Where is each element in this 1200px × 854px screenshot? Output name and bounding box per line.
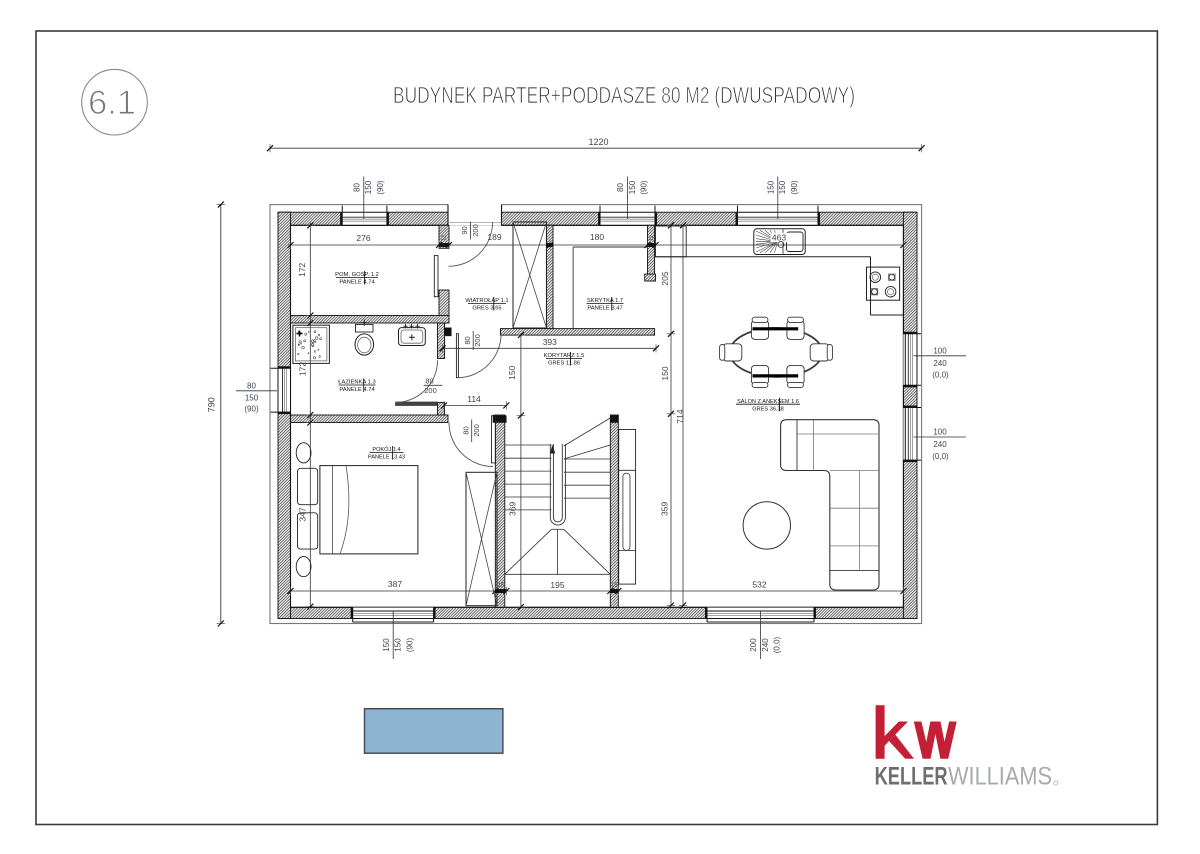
svg-text:(90): (90) xyxy=(376,180,385,195)
svg-text:393: 393 xyxy=(543,337,557,347)
svg-text:150: 150 xyxy=(507,365,517,379)
svg-text:347: 347 xyxy=(298,507,308,521)
svg-text:200: 200 xyxy=(473,334,482,347)
svg-text:80: 80 xyxy=(247,382,256,391)
svg-text:PANELE 4.74: PANELE 4.74 xyxy=(339,387,375,393)
svg-text:200: 200 xyxy=(424,386,437,395)
svg-text:(0,0): (0,0) xyxy=(932,452,949,461)
svg-text:90: 90 xyxy=(460,226,469,234)
svg-text:189: 189 xyxy=(487,232,501,242)
svg-text:PANELE 3.47: PANELE 3.47 xyxy=(587,306,622,312)
svg-text:(90): (90) xyxy=(790,180,799,195)
svg-text:100: 100 xyxy=(933,347,947,356)
svg-text:(0,0): (0,0) xyxy=(773,636,782,653)
svg-text:369: 369 xyxy=(508,502,518,516)
svg-text:100: 100 xyxy=(933,428,947,437)
svg-text:790: 790 xyxy=(206,397,216,412)
svg-text:(0,0): (0,0) xyxy=(932,371,949,380)
svg-text:200: 200 xyxy=(471,224,480,237)
svg-text:387: 387 xyxy=(388,579,402,589)
svg-text:150: 150 xyxy=(660,366,670,380)
svg-text:80: 80 xyxy=(353,183,362,192)
svg-text:15: 15 xyxy=(497,583,504,589)
svg-text:80: 80 xyxy=(425,376,433,385)
svg-text:BUDYNEK PARTER+PODDASZE 80 M2: BUDYNEK PARTER+PODDASZE 80 M2 (DWUSPADOW… xyxy=(393,82,855,108)
svg-text:15: 15 xyxy=(611,583,618,589)
svg-text:150: 150 xyxy=(364,180,373,194)
svg-text:150: 150 xyxy=(628,180,637,194)
svg-text:240: 240 xyxy=(761,638,770,652)
svg-text:WILLIAMS: WILLIAMS xyxy=(948,763,1052,791)
svg-text:172: 172 xyxy=(297,362,307,376)
svg-text:(90): (90) xyxy=(405,638,414,653)
svg-text:PANELE 4.74: PANELE 4.74 xyxy=(339,280,375,286)
svg-text:(90): (90) xyxy=(640,180,649,195)
svg-text:GRES 3.65: GRES 3.65 xyxy=(472,306,501,312)
svg-text:532: 532 xyxy=(752,580,766,590)
svg-text:276: 276 xyxy=(356,233,370,243)
svg-text:80: 80 xyxy=(462,426,471,434)
svg-text:80: 80 xyxy=(463,336,472,344)
svg-text:359: 359 xyxy=(660,502,670,516)
svg-text:GRES 36.38: GRES 36.38 xyxy=(752,406,783,412)
svg-text:150: 150 xyxy=(382,638,391,652)
svg-text:714: 714 xyxy=(675,409,685,423)
svg-text:200: 200 xyxy=(472,424,481,437)
svg-text:240: 240 xyxy=(933,359,947,368)
svg-text:240: 240 xyxy=(933,440,947,449)
svg-text:1220: 1220 xyxy=(588,137,608,147)
svg-text:6.1: 6.1 xyxy=(88,84,136,122)
svg-text:150: 150 xyxy=(767,180,776,194)
svg-text:GRES 11.86: GRES 11.86 xyxy=(548,361,580,367)
svg-text:(90): (90) xyxy=(244,405,259,414)
svg-text:200: 200 xyxy=(749,638,758,652)
svg-text:180: 180 xyxy=(590,232,604,242)
svg-text:150: 150 xyxy=(778,180,787,194)
svg-text:KELLER: KELLER xyxy=(875,763,948,791)
svg-text:150: 150 xyxy=(394,638,403,652)
svg-text:12: 12 xyxy=(441,235,447,241)
svg-text:463: 463 xyxy=(772,233,786,243)
svg-text:205: 205 xyxy=(660,271,670,285)
svg-text:114: 114 xyxy=(467,394,481,404)
svg-text:172: 172 xyxy=(297,262,307,276)
svg-text:12: 12 xyxy=(649,235,655,241)
svg-text:80: 80 xyxy=(616,183,625,192)
svg-text:150: 150 xyxy=(245,394,259,403)
svg-text:PANELE 13.43: PANELE 13.43 xyxy=(368,455,405,461)
svg-text:195: 195 xyxy=(550,580,564,590)
